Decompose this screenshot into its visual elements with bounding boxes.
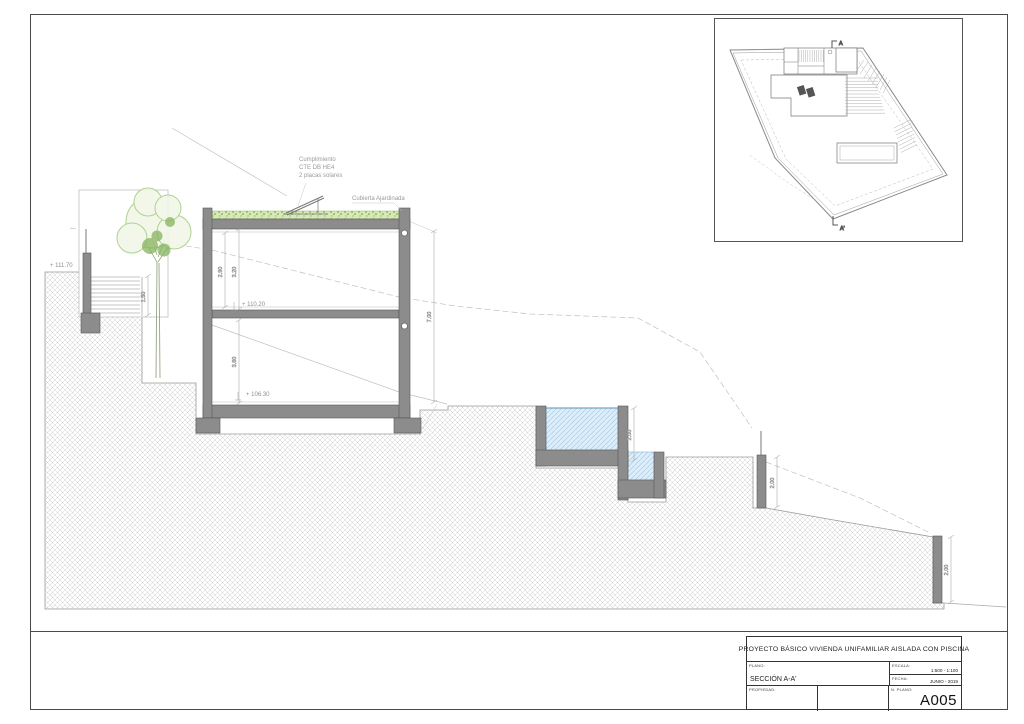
annotations: Cumplimiento CTE DB HE4 2 placas solares… [299,157,405,211]
fecha-label: FECHA: [892,676,908,681]
solar-note-line3: 2 placas solares [299,173,342,179]
solar-note-line2: CTE DB HE4 [299,165,335,171]
green-roof-label: Cubierta Ajardinada [352,196,405,202]
dim-pool-depth: 2.00 [627,430,633,441]
solar-note-line1: Cumplimiento [299,157,336,163]
dim-right-total: 7.00 [427,312,433,323]
section-mark-a-prime: A' [840,226,845,232]
right-footing [394,418,421,433]
slab-edge-pipe [402,323,408,329]
fecha-cell: FECHA: JUNIO - 2019 [890,674,961,686]
title-block: PROYECTO BÁSICO VIVIENDA UNIFAMILIAR AIS… [746,636,962,710]
plano-value: SECCIÓN A-A' [750,676,796,683]
num-plano-value: A005 [920,692,957,709]
level-street-text: + 111.70 [50,263,73,269]
escala-label: ESCALA: [892,663,910,668]
green-roof-leader [352,203,402,211]
dim-lower-interior: 3.60 [232,357,238,368]
dim-upper-interior: 2.90 [218,267,224,278]
ground-slab [203,405,410,418]
terrain-section [45,272,944,609]
site-plan-inset: A A' [715,19,963,242]
dim-lower-wall: 2.00 [944,565,950,576]
green-roof-layer [212,211,399,219]
section-drawing: + 111.70 + 110.20 + 106.30 Cumplimiento … [0,0,1024,724]
house-section [196,208,421,433]
propiedad-cell: PROPIEDAD: [747,686,818,711]
drawing-sheet: + 111.70 + 110.20 + 106.30 Cumplimiento … [0,0,1024,724]
left-wall [203,208,212,418]
roof-edge-pipe [402,230,408,236]
escala-cell: ESCALA: 1:500 - 1:100 [890,662,961,674]
ground-line-right [944,603,1006,607]
propiedad-label: PROPIEDAD: [749,687,776,692]
escala-value: 1:500 - 1:100 [931,668,958,673]
project-title: PROYECTO BÁSICO VIVIENDA UNIFAMILIAR AIS… [747,637,961,662]
fecha-value: JUNIO - 2019 [930,679,958,684]
entry-stairs [88,277,142,316]
lower-retaining-wall [933,536,942,603]
level-lower-text: + 106.30 [246,392,270,398]
plano-label: PLANO: [749,663,765,668]
plano-cell: PLANO: SECCIÓN A-A' [747,662,890,685]
pool-water [546,408,618,450]
basin-water [628,452,654,480]
solar-note-leader [298,183,306,206]
mid-retaining-wall [757,431,766,508]
section-mark-a: A [839,41,843,47]
dim-upper-total: 3.20 [232,267,238,278]
left-footing [196,418,220,433]
dim-mid-wall: 2.00 [770,478,776,489]
roof-slab [203,219,410,229]
num-plano-label: N. PLANO: [891,687,913,692]
right-wall [399,208,410,418]
empty-cell [818,686,889,711]
dim-entry-stairs: 1.50 [141,292,147,303]
level-upper-text: + 110.20 [242,302,266,308]
mid-slab [212,310,399,318]
pool-plan [837,143,897,163]
num-plano-cell: N. PLANO: A005 [889,686,961,711]
